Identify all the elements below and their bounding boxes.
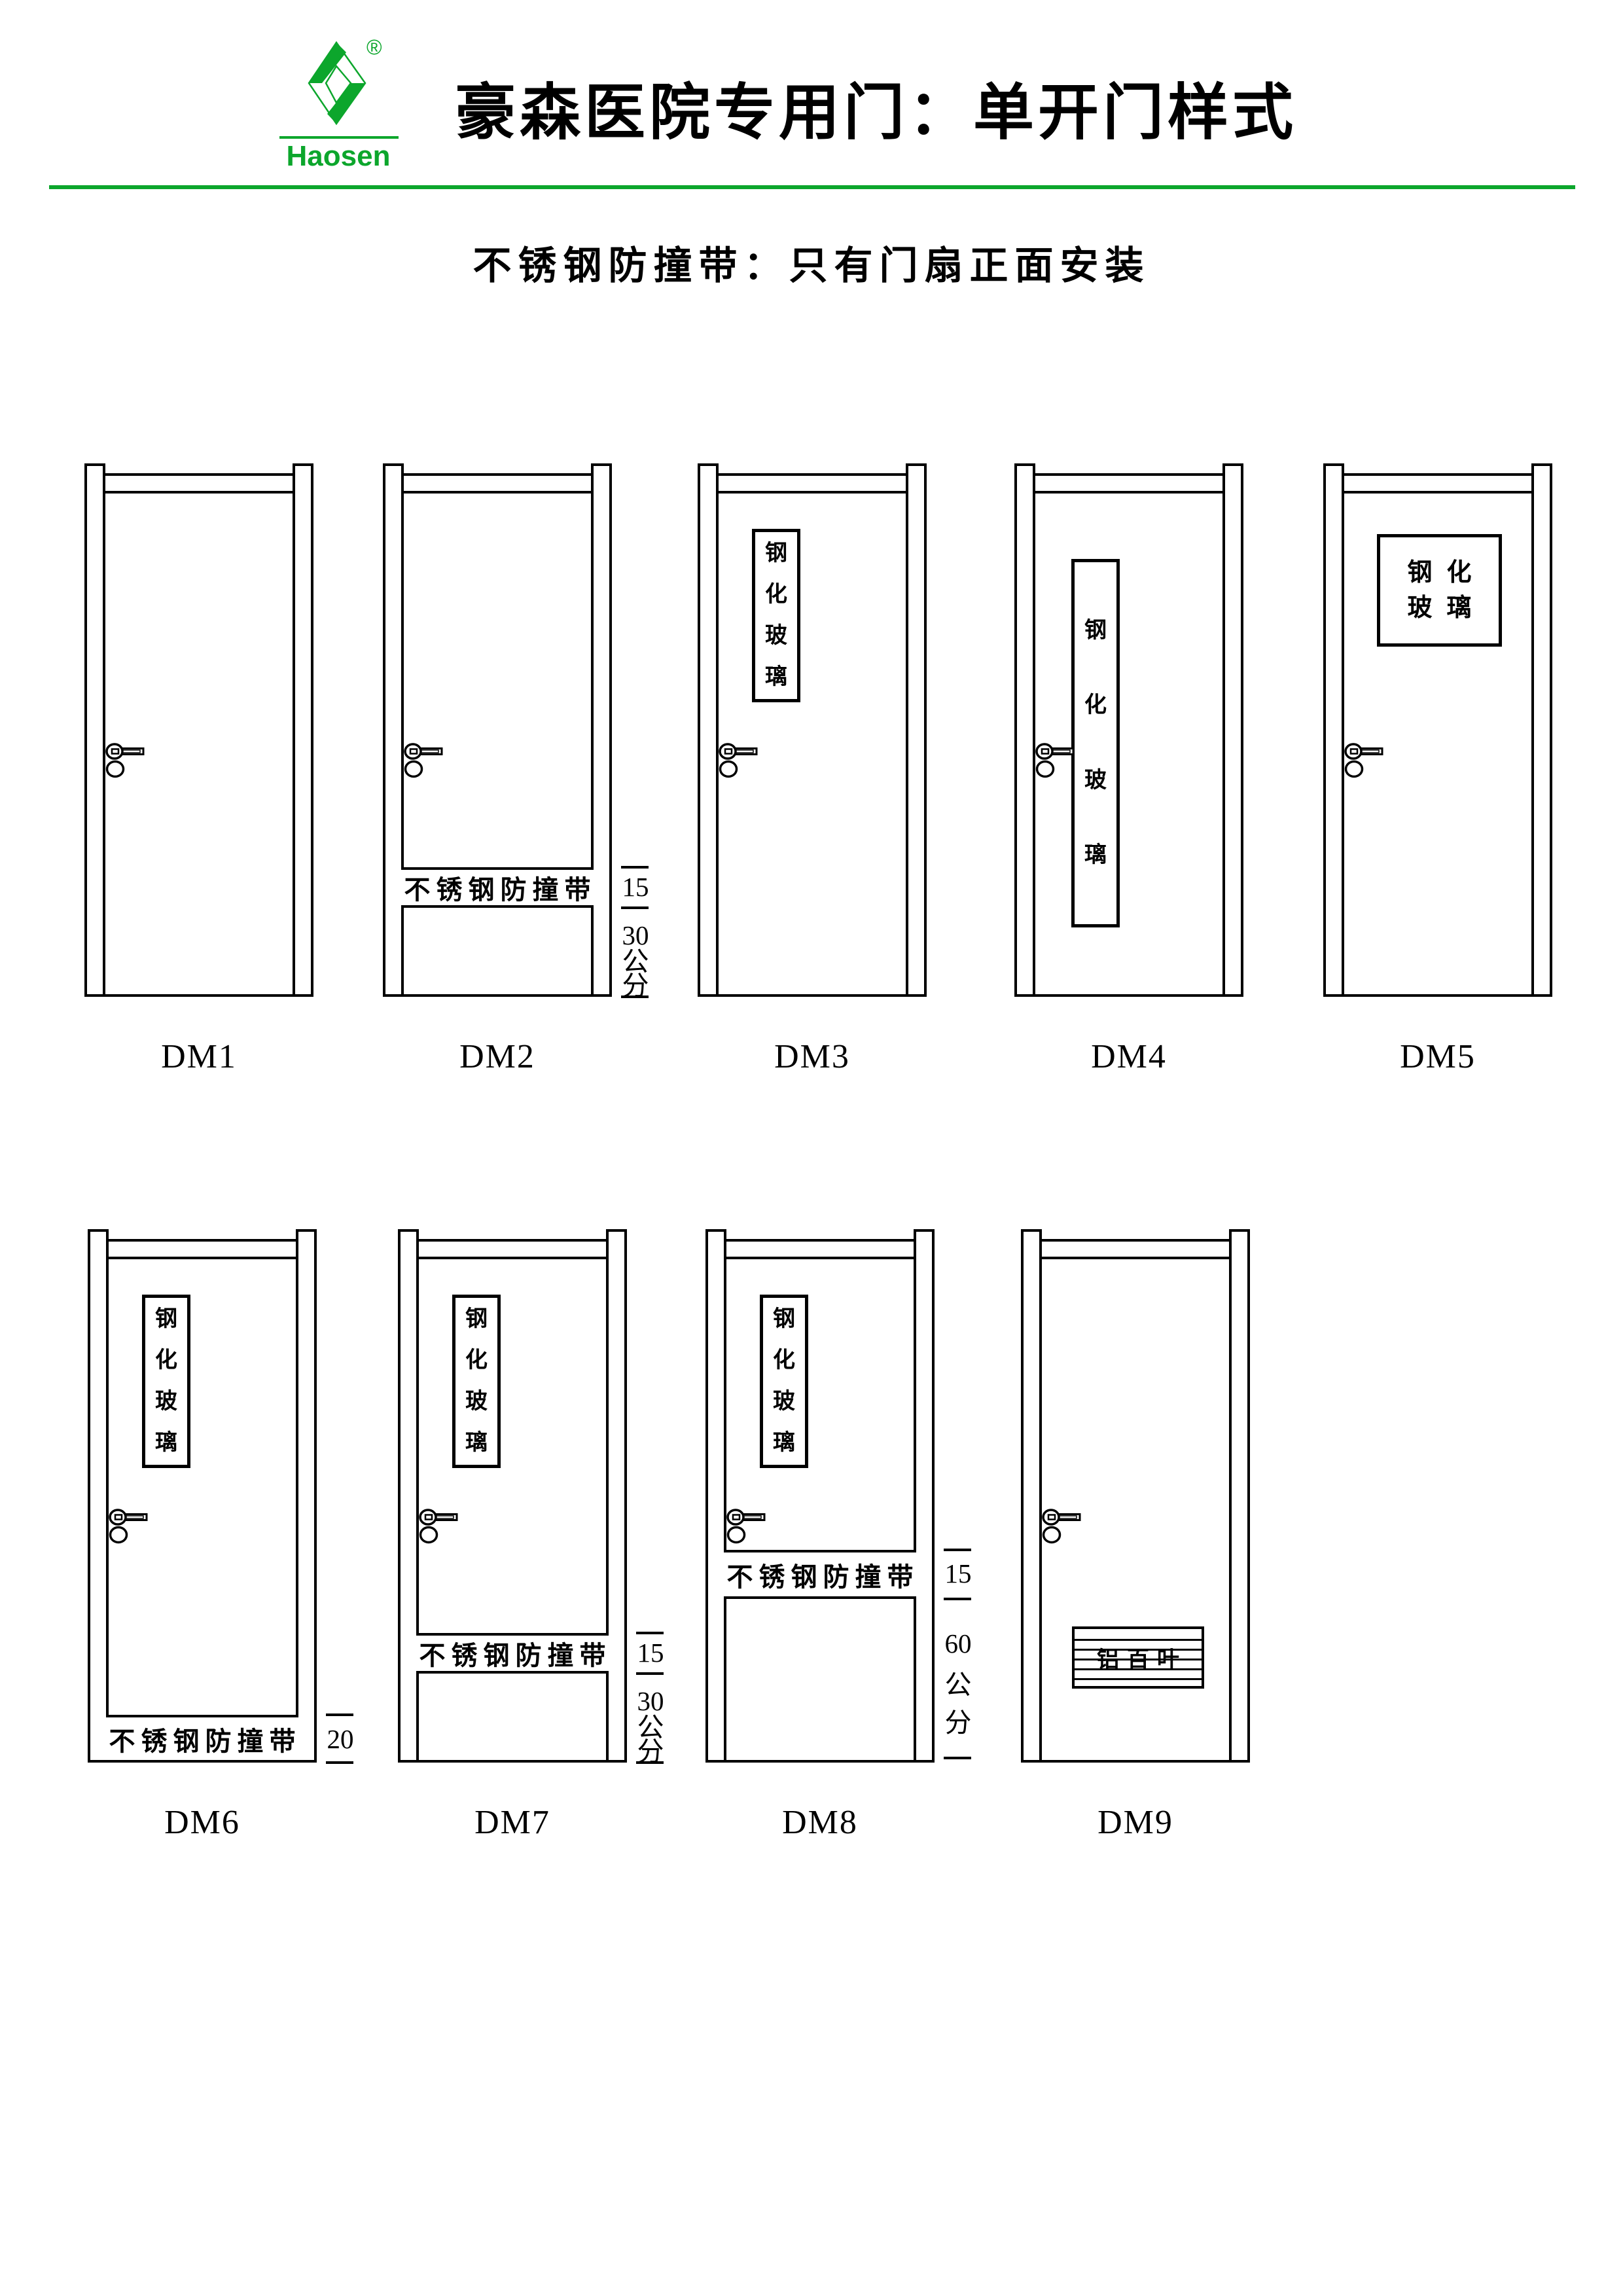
door-dm1: DM1: [84, 463, 313, 997]
dimension-tick: [944, 1757, 971, 1759]
glass-label-char: 钢: [1084, 620, 1107, 642]
door-frame-right-post: [1531, 463, 1552, 997]
dimension-text: 分: [616, 971, 655, 1001]
door-frame-right-post: [591, 463, 612, 997]
dimension-text: 15: [938, 1559, 978, 1588]
door-dm6: 钢化玻璃不锈钢防撞带20DM6: [88, 1229, 317, 1763]
door-handle: [1040, 1507, 1105, 1548]
dimension-text: 60: [938, 1629, 978, 1659]
glass-label-char: 璃: [773, 1432, 795, 1454]
door-handle-icon: [717, 742, 782, 782]
glass-label-char: 璃: [465, 1432, 488, 1454]
door-handle: [1033, 742, 1099, 782]
door-caption: DM2: [383, 1037, 612, 1076]
glass-label-char: 化: [155, 1350, 177, 1372]
door-handle-icon: [107, 1507, 172, 1548]
door-dm8: 钢化玻璃不锈钢防撞带1560公分DM8: [705, 1229, 935, 1763]
door-caption: DM6: [88, 1803, 317, 1842]
dimension-tick: [326, 1713, 353, 1716]
dimension-tick: [636, 1632, 664, 1634]
bumper-strip-label: 不锈钢防撞带: [414, 1634, 612, 1672]
door-handle-icon: [1342, 742, 1408, 782]
door-handle-icon: [1033, 742, 1099, 782]
dimension-text: 15: [631, 1638, 670, 1668]
door-dm7: 钢化玻璃不锈钢防撞带1530公分DM7: [398, 1229, 627, 1763]
dimension-tick: [636, 1672, 664, 1675]
bumper-strip-label: 不锈钢防撞带: [103, 1720, 302, 1758]
glass-label-char: 玻: [765, 625, 787, 647]
glass-label-char: 璃: [155, 1432, 177, 1454]
dimension-text: 15: [616, 872, 655, 902]
doors-canvas: DM1不锈钢防撞带1530公分DM2钢化玻璃DM3钢化玻璃DM4钢化玻璃DM5钢…: [0, 0, 1623, 2296]
door-frame-right-post: [906, 463, 927, 997]
door-caption: DM1: [84, 1037, 313, 1076]
bumper-strip: 不锈钢防撞带: [106, 1715, 298, 1763]
door-dm2: 不锈钢防撞带1530公分DM2: [383, 463, 612, 997]
louver-label: 铝百叶: [1075, 1629, 1202, 1686]
glass-label-char: 钢: [773, 1308, 795, 1331]
tempered-glass-panel: 钢化玻璃: [452, 1295, 501, 1468]
dimension-text: 分: [938, 1708, 978, 1738]
tempered-glass-panel: 钢化玻璃: [142, 1295, 190, 1468]
glass-label-char: 化: [1084, 694, 1107, 717]
aluminum-louver-panel: 铝百叶: [1072, 1626, 1204, 1689]
door-dm9: 铝百叶DM9: [1021, 1229, 1250, 1763]
door-handle: [724, 1507, 790, 1548]
page: ® Haosen 豪森医院专用门：单开门样式 不锈钢防撞带：只有门扇正面安装 D…: [0, 0, 1623, 2296]
door-handle-icon: [402, 742, 467, 782]
door-caption: DM7: [398, 1803, 627, 1842]
glass-label-line: 钢化: [1393, 560, 1486, 585]
bumper-strip: 不锈钢防撞带: [401, 867, 594, 908]
dimension-text: 分: [631, 1737, 670, 1767]
glass-label-char: 钢: [465, 1308, 488, 1331]
glass-label-char: 化: [773, 1350, 795, 1372]
dimension-text: 公: [938, 1670, 978, 1700]
bumper-strip-label: 不锈钢防撞带: [721, 1556, 919, 1594]
bumper-strip: 不锈钢防撞带: [724, 1550, 916, 1599]
door-handle: [417, 1507, 482, 1548]
door-dm4: 钢化玻璃DM4: [1014, 463, 1243, 997]
door-handle-icon: [103, 742, 169, 782]
glass-label-line: 玻璃: [1393, 596, 1486, 620]
door-handle: [107, 1507, 172, 1548]
door-dm5: 钢化玻璃DM5: [1323, 463, 1552, 997]
glass-label-char: 璃: [1084, 844, 1107, 867]
door-frame-right-post: [1222, 463, 1243, 997]
door-dm3: 钢化玻璃DM3: [698, 463, 927, 997]
tempered-glass-panel: 钢化玻璃: [1377, 534, 1502, 647]
tempered-glass-panel: 钢化玻璃: [752, 529, 800, 702]
door-handle-icon: [417, 1507, 482, 1548]
door-caption: DM8: [705, 1803, 935, 1842]
dimension-tick: [944, 1598, 971, 1600]
door-caption: DM3: [698, 1037, 927, 1076]
door-handle-icon: [1040, 1507, 1105, 1548]
door-handle-icon: [724, 1507, 790, 1548]
glass-label-char: 玻: [465, 1391, 488, 1413]
glass-label-char: 玻: [155, 1391, 177, 1413]
dimension-tick: [944, 1549, 971, 1551]
door-frame-right-post: [293, 463, 313, 997]
glass-label-char: 钢: [765, 543, 787, 565]
door-caption: DM4: [1014, 1037, 1243, 1076]
bumper-strip-label: 不锈钢防撞带: [399, 869, 597, 906]
dimension-tick: [326, 1761, 353, 1764]
door-frame-right-post: [606, 1229, 627, 1763]
glass-label-char: 璃: [765, 666, 787, 689]
tempered-glass-panel: 钢化玻璃: [760, 1295, 808, 1468]
glass-label-char: 钢: [155, 1308, 177, 1331]
door-handle: [1342, 742, 1408, 782]
dimension-tick: [621, 906, 649, 909]
glass-label-char: 化: [765, 584, 787, 606]
door-handle: [717, 742, 782, 782]
dimension-tick: [621, 866, 649, 869]
glass-label-char: 玻: [773, 1391, 795, 1413]
door-frame-right-post: [1229, 1229, 1250, 1763]
door-handle: [402, 742, 467, 782]
door-frame-right-post: [296, 1229, 317, 1763]
bumper-strip: 不锈钢防撞带: [416, 1633, 609, 1674]
door-frame-right-post: [914, 1229, 935, 1763]
dimension-text: 20: [321, 1725, 360, 1754]
glass-label-char: 化: [465, 1350, 488, 1372]
door-caption: DM9: [1021, 1803, 1250, 1842]
door-handle: [103, 742, 169, 782]
door-caption: DM5: [1323, 1037, 1552, 1076]
